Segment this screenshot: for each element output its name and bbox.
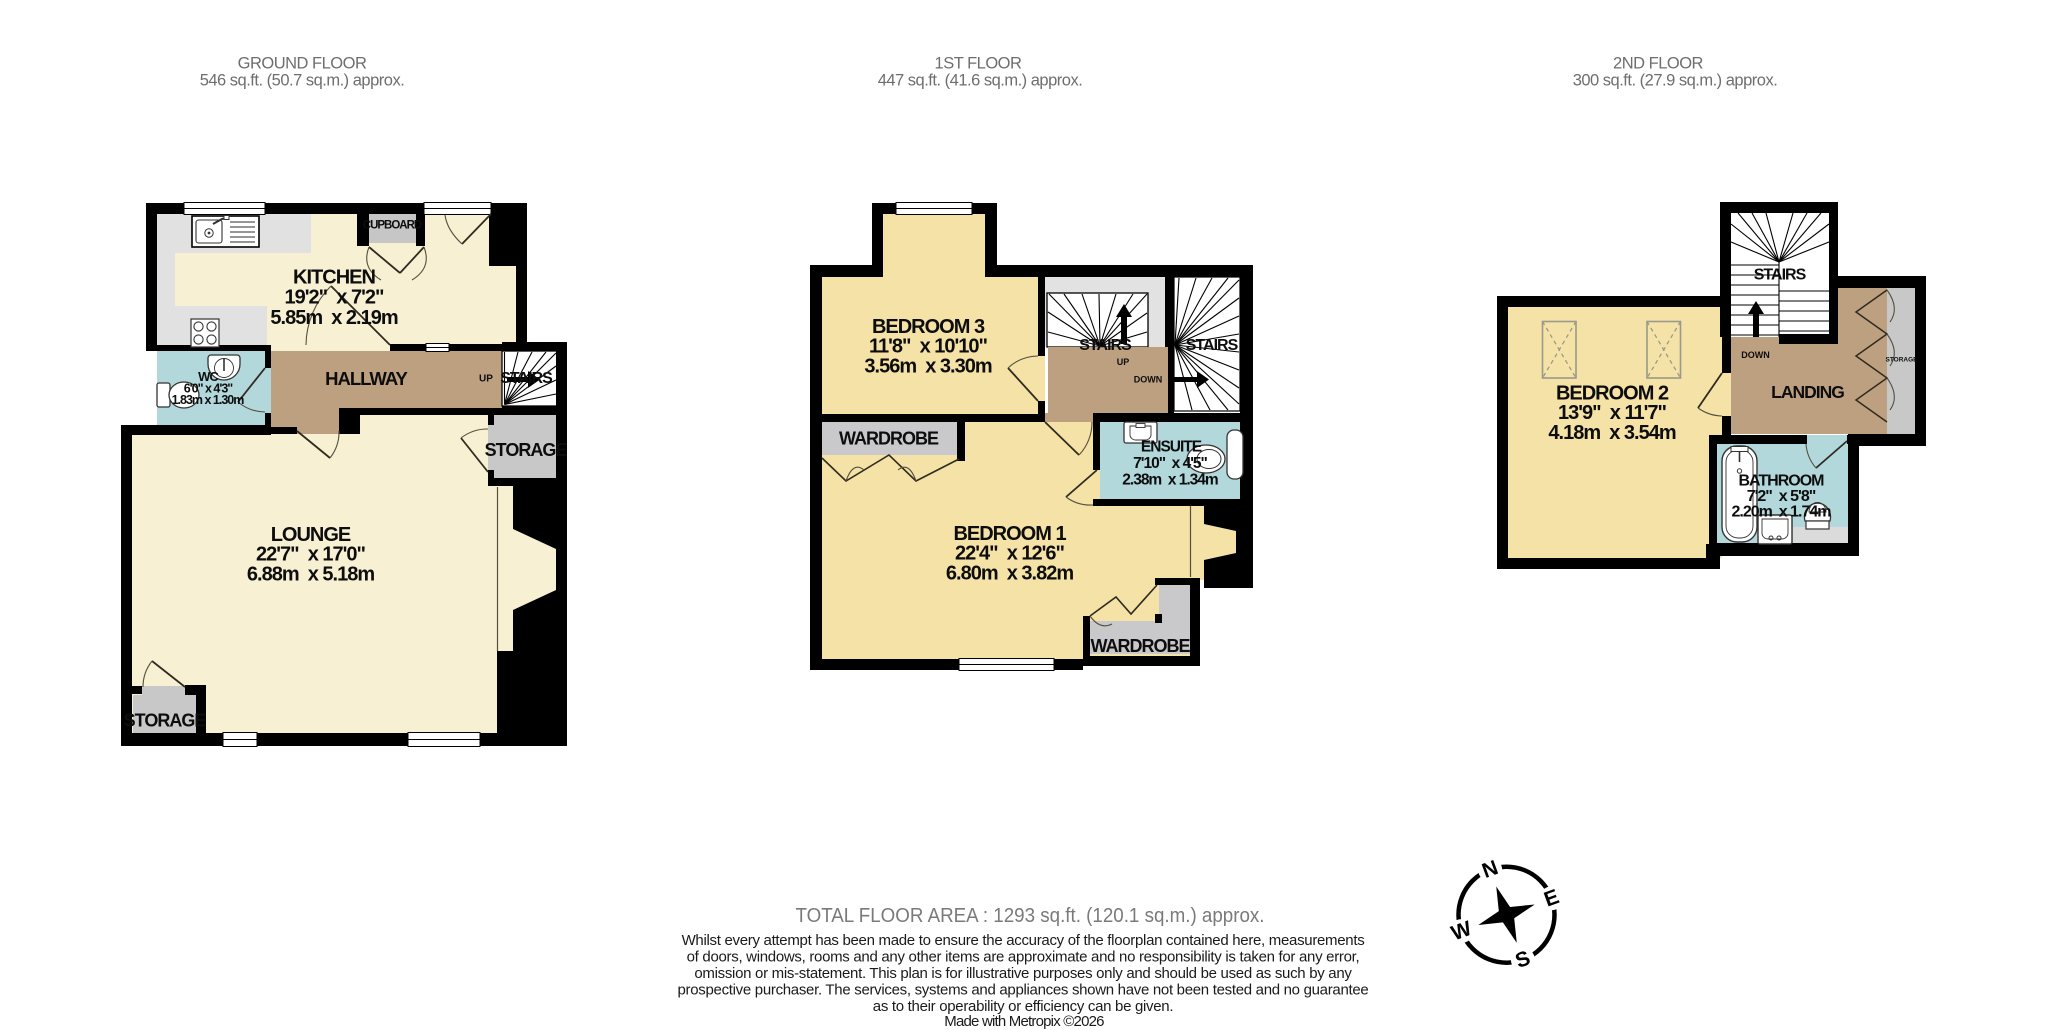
svg-text:of doors, windows, rooms and a: of doors, windows, rooms and any other i…: [687, 949, 1360, 966]
svg-text:7'2" x 5'8": 7'2" x 5'8": [1747, 488, 1816, 505]
svg-text:prospective purchaser. The ser: prospective purchaser. The services, sys…: [678, 982, 1369, 999]
svg-text:WARDROBE: WARDROBE: [839, 429, 939, 449]
svg-text:UP: UP: [479, 374, 493, 385]
svg-text:STORAGE: STORAGE: [124, 711, 207, 731]
svg-text:447 sq.ft. (41.6 sq.m.) approx: 447 sq.ft. (41.6 sq.m.) approx.: [878, 72, 1083, 90]
svg-text:1ST FLOOR: 1ST FLOOR: [935, 55, 1022, 73]
svg-text:LANDING: LANDING: [1771, 382, 1844, 402]
svg-text:HALLWAY: HALLWAY: [325, 368, 408, 389]
svg-text:Made with Metropix ©2026: Made with Metropix ©2026: [944, 1013, 1104, 1030]
svg-text:KITCHEN: KITCHEN: [293, 267, 375, 289]
svg-text:1.83m x 1.30m: 1.83m x 1.30m: [172, 393, 245, 407]
svg-text:7'10" x 4'5": 7'10" x 4'5": [1133, 455, 1207, 472]
svg-text:546 sq.ft. (50.7 sq.m.) approx: 546 sq.ft. (50.7 sq.m.) approx.: [200, 72, 405, 90]
svg-text:300 sq.ft. (27.9 sq.m.) approx: 300 sq.ft. (27.9 sq.m.) approx.: [1573, 72, 1778, 90]
svg-text:2ND FLOOR: 2ND FLOOR: [1613, 55, 1704, 73]
svg-text:STAIRS: STAIRS: [1079, 337, 1132, 354]
svg-text:omission or mis-statement. Thi: omission or mis-statement. This plan is …: [694, 965, 1352, 982]
svg-text:13'9" x 11'7": 13'9" x 11'7": [1558, 402, 1666, 424]
svg-text:ENSUITE: ENSUITE: [1141, 439, 1202, 456]
svg-text:BATHROOM: BATHROOM: [1738, 473, 1824, 490]
svg-text:3.56m x 3.30m: 3.56m x 3.30m: [864, 356, 991, 378]
svg-text:STORAGE: STORAGE: [485, 440, 568, 460]
svg-text:TOTAL FLOOR AREA : 1293 sq.ft.: TOTAL FLOOR AREA : 1293 sq.ft. (120.1 sq…: [796, 905, 1265, 927]
svg-text:11'8" x 10'10": 11'8" x 10'10": [869, 336, 988, 358]
svg-text:WARDROBE: WARDROBE: [1091, 636, 1191, 656]
svg-text:5.85m x 2.19m: 5.85m x 2.19m: [270, 307, 397, 329]
svg-text:6.88m x 5.18m: 6.88m x 5.18m: [247, 564, 374, 586]
svg-text:CUPBOARD: CUPBOARD: [363, 220, 422, 232]
svg-text:STORAGE: STORAGE: [1885, 357, 1918, 364]
svg-text:DOWN: DOWN: [1134, 375, 1163, 385]
svg-text:DOWN: DOWN: [1741, 350, 1770, 360]
svg-text:22'4" x 12'6": 22'4" x 12'6": [955, 543, 1065, 565]
svg-text:Whilst every attempt has been: Whilst every attempt has been made to en…: [682, 932, 1365, 949]
svg-text:6.80m x 3.82m: 6.80m x 3.82m: [946, 563, 1073, 585]
svg-text:STAIRS: STAIRS: [500, 370, 553, 387]
svg-text:STAIRS: STAIRS: [1754, 267, 1807, 284]
svg-text:GROUND FLOOR: GROUND FLOOR: [238, 55, 367, 73]
svg-text:UP: UP: [1117, 357, 1130, 367]
svg-text:STAIRS: STAIRS: [1186, 337, 1239, 354]
svg-text:22'7" x 17'0": 22'7" x 17'0": [256, 544, 366, 566]
svg-text:4.18m x 3.54m: 4.18m x 3.54m: [1548, 422, 1675, 444]
svg-text:2.38m x 1.34m: 2.38m x 1.34m: [1122, 472, 1218, 489]
svg-text:19'2" x 7'2": 19'2" x 7'2": [285, 287, 384, 309]
svg-text:2.20m x 1.74m: 2.20m x 1.74m: [1732, 504, 1832, 521]
